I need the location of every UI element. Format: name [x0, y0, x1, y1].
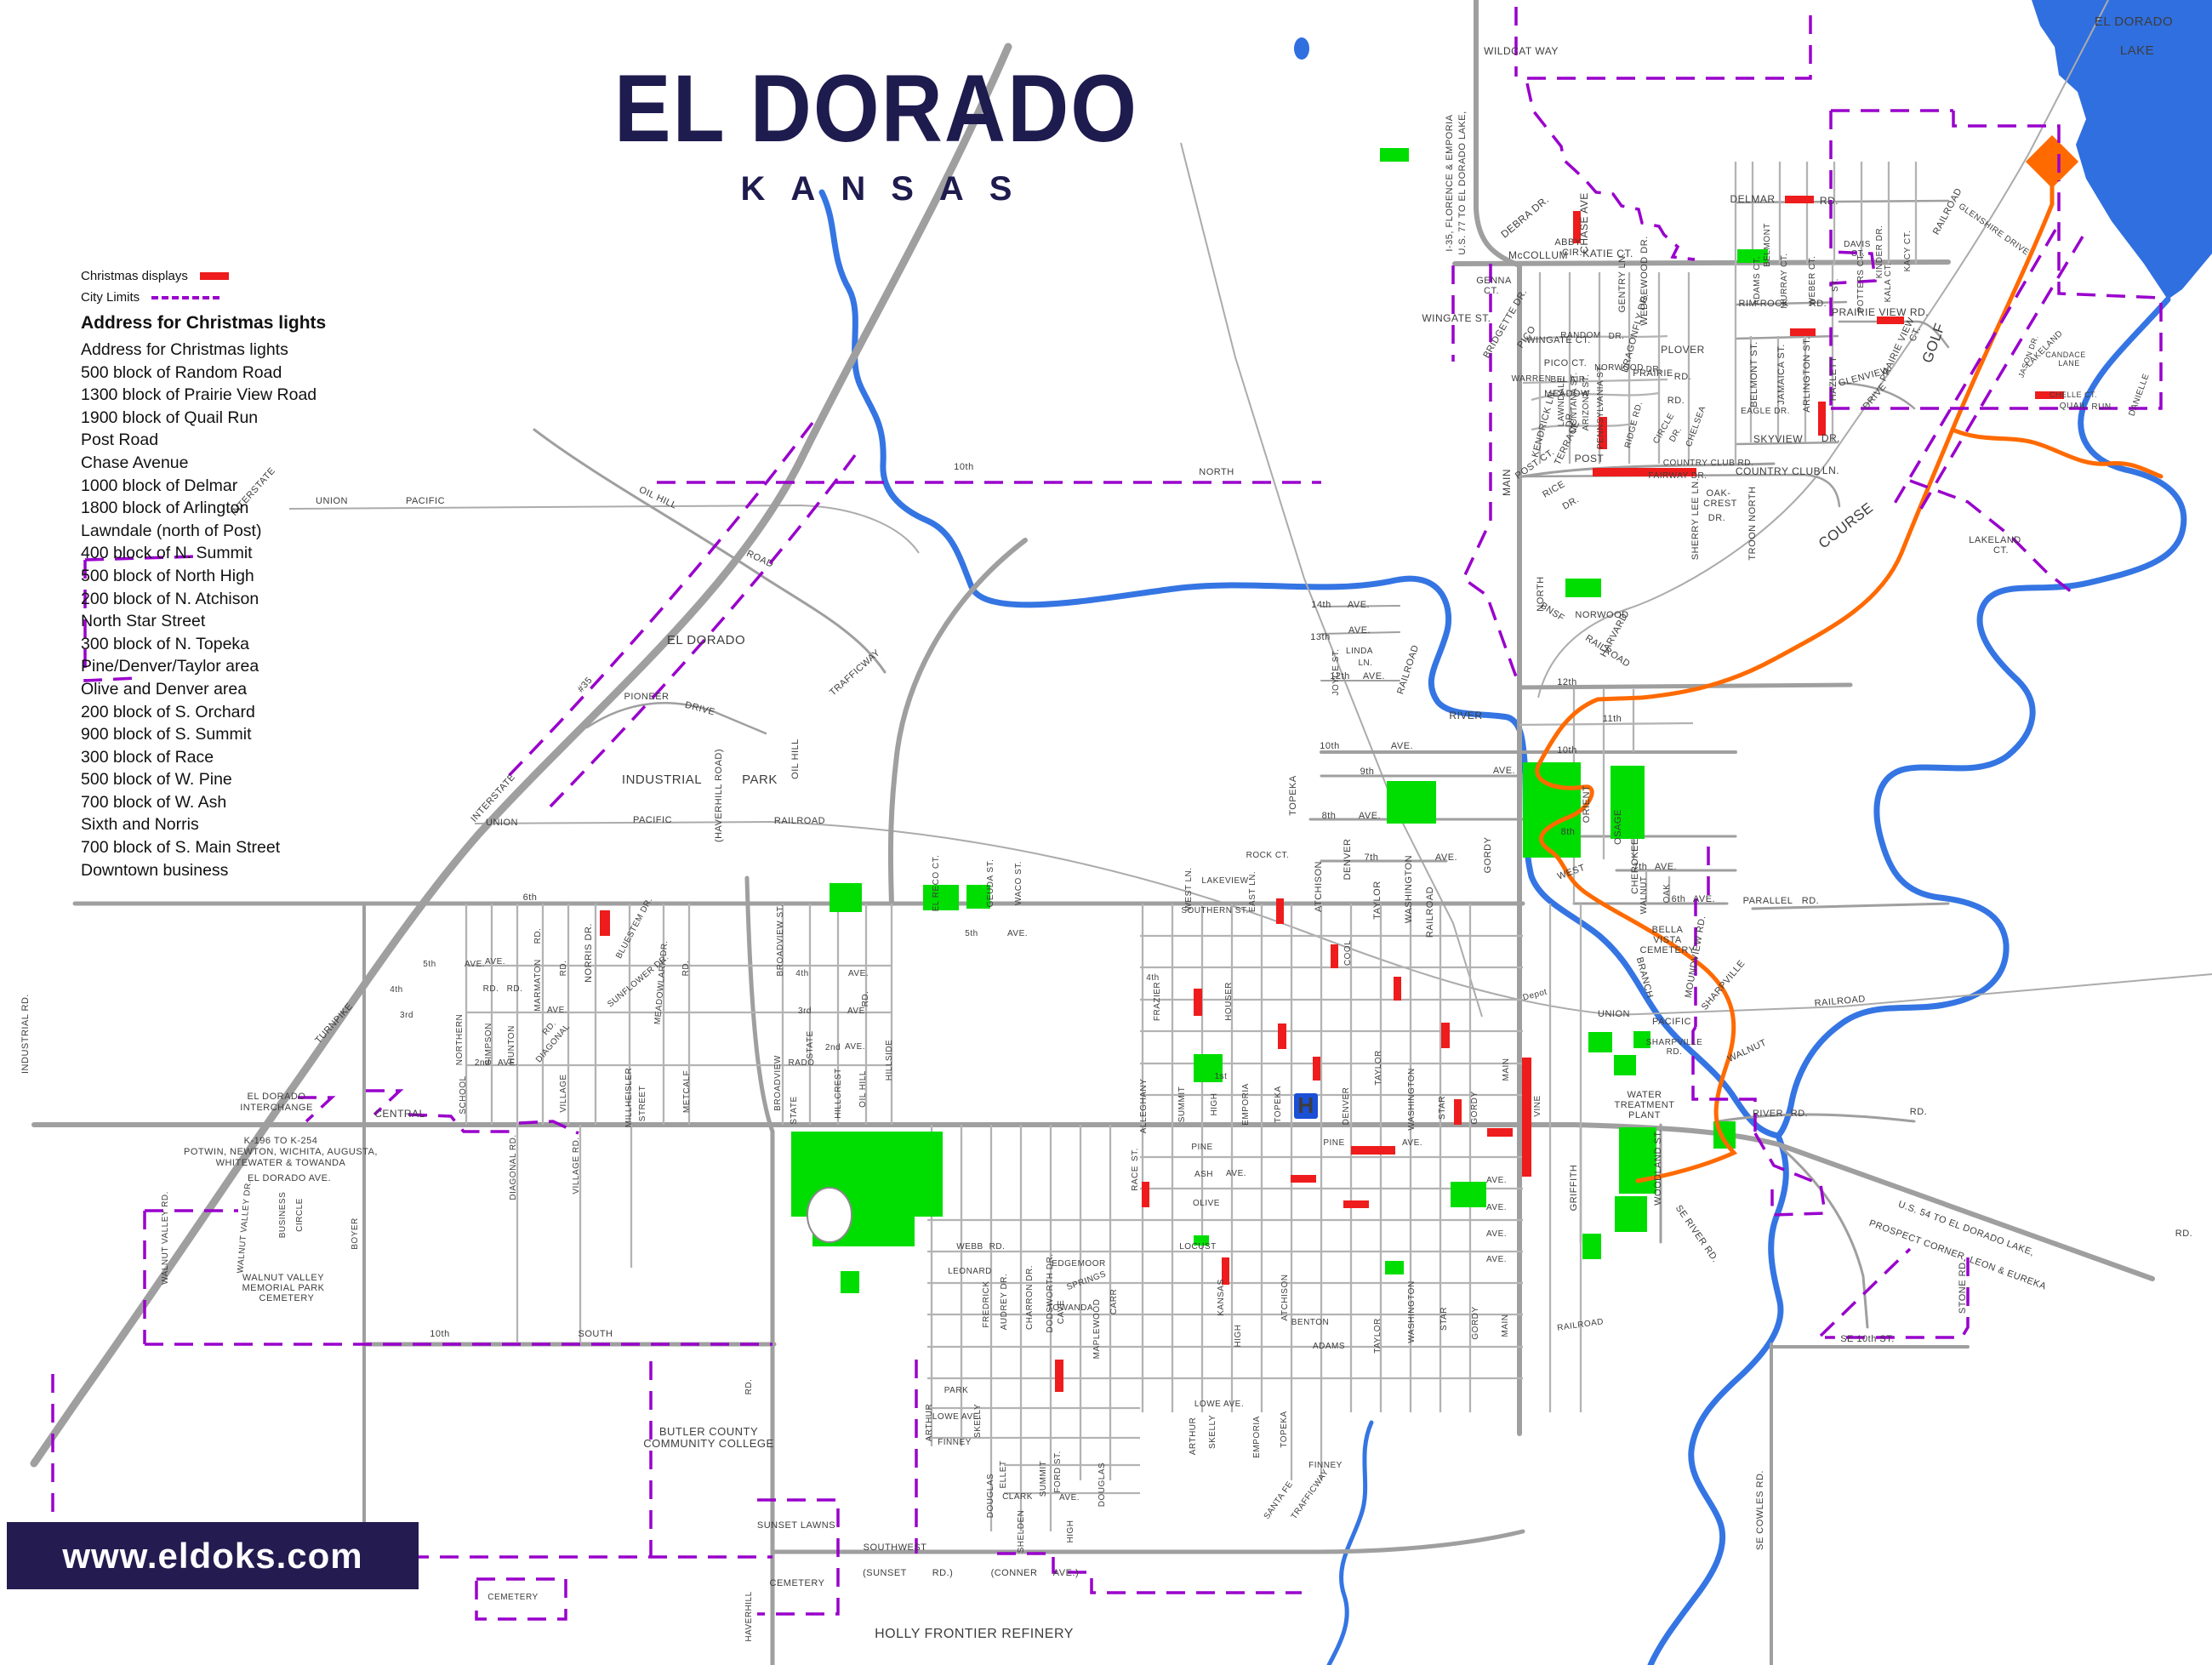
- map-label: TROON NORTH: [1747, 486, 1758, 560]
- christmas-display-marker: [1394, 977, 1401, 1001]
- park-area: [1614, 1055, 1636, 1075]
- map-label: LANE: [2058, 359, 2080, 368]
- park-area: [841, 1271, 859, 1293]
- map-label: U.S. 77 TO EL DORADO LAKE,: [1457, 111, 1468, 254]
- map-label: ST.: [1131, 1148, 1140, 1161]
- map-label: EL DORADO AVE.: [248, 1173, 331, 1183]
- map-label: TOWANDA: [1047, 1303, 1093, 1313]
- map-label: DRIVE: [684, 700, 716, 718]
- park-area: [1380, 148, 1409, 162]
- map-label: RANDOM: [1560, 331, 1600, 340]
- map-label: AVE.: [847, 1006, 868, 1016]
- map-label: BEL AIR: [1551, 375, 1586, 385]
- map-label: LN.: [1358, 659, 1372, 668]
- map-label: LEONARD: [948, 1267, 992, 1276]
- christmas-display-marker: [1313, 1057, 1320, 1081]
- map-label: VISTA: [1653, 935, 1682, 945]
- city-map: H WILDCAT WAYI-35, FLORENCE & EMPORIAU.S…: [0, 0, 2212, 1665]
- map-label: LOCUST: [1179, 1242, 1217, 1252]
- map-label: AVE.: [1007, 929, 1028, 938]
- map-label: 1st: [1215, 1072, 1228, 1081]
- map-label: ORIENT: [1582, 785, 1592, 824]
- address-item: 400 block of N. Summit: [81, 542, 326, 565]
- map-label: 10th: [1557, 745, 1576, 756]
- el-dorado-christmas-map: { "title":{"line1":"EL DORADO","line2":"…: [0, 0, 2212, 1665]
- map-label: TRAFFICWAY: [1290, 1468, 1331, 1521]
- map-label: STAR: [1440, 1307, 1449, 1331]
- map-label: 8th: [1561, 827, 1576, 837]
- map-label: AVE.: [1348, 600, 1370, 610]
- map-label: ADAMS: [1313, 1342, 1345, 1351]
- map-label: BOYER: [351, 1217, 360, 1250]
- map-label: HIGH: [1234, 1325, 1243, 1348]
- pond: [1294, 37, 1309, 60]
- map-label: VINE: [1533, 1095, 1542, 1116]
- park-area: [1385, 1261, 1404, 1274]
- map-label: RD.: [1667, 1047, 1683, 1057]
- map-label: AVE.: [1359, 811, 1381, 821]
- map-label: BROADVIEW ST.: [776, 904, 785, 977]
- map-label: COOL: [1343, 940, 1353, 966]
- map-label: DIAGONAL RD.: [509, 1134, 518, 1200]
- map-label: INDUSTRIAL RD.: [20, 994, 31, 1074]
- map-label: AVE.: [1226, 1169, 1246, 1178]
- map-label: GLENSHIRE DRIVE: [1957, 202, 2031, 258]
- map-label: RIVER: [1753, 1109, 1783, 1119]
- map-label: VILLAGE: [559, 1074, 568, 1112]
- map-label: ALLEGHANY: [1139, 1079, 1149, 1134]
- christmas-display-marker: [1331, 944, 1338, 968]
- map-label: SOUTHERN ST.: [1181, 906, 1248, 915]
- map-label: STREET: [638, 1086, 647, 1121]
- christmas-display-marker: [600, 910, 610, 936]
- map-label: GRIFFITH: [1569, 1165, 1579, 1212]
- map-label: MONTANA ST.: [1570, 372, 1579, 432]
- map-label: MAIN: [1502, 1058, 1511, 1081]
- map-label: PRAIRIE VIEW RD.: [1832, 306, 1929, 318]
- map-label: 6th: [523, 892, 538, 903]
- map-label: SUNSET LAWNS: [757, 1520, 835, 1531]
- map-label: HILLSIDE: [885, 1040, 894, 1081]
- address-item: 500 block of North High: [81, 565, 326, 588]
- map-label: LN.: [1822, 465, 1839, 476]
- map-label: AUDREY DR.: [1000, 1274, 1009, 1331]
- map-label: ARLINGTON ST.: [1802, 336, 1812, 412]
- map-label: CIRCLE: [295, 1198, 305, 1232]
- map-label: BROADVIEW: [773, 1055, 783, 1111]
- map-label: AVE.: [1493, 766, 1515, 776]
- map-label: NORTH: [1536, 576, 1546, 611]
- map-label: WATER: [1628, 1090, 1662, 1100]
- map-label: AVE.: [1363, 671, 1385, 681]
- map-label: AVE.: [1486, 1229, 1507, 1239]
- map-label: STAR: [1438, 1096, 1447, 1120]
- map-label: RD.: [1820, 195, 1839, 207]
- map-label: GORDY: [1471, 1306, 1480, 1339]
- logo-title: EL DORADO: [544, 61, 1208, 157]
- map-label: LOWE AVE.: [1194, 1400, 1244, 1409]
- legend-label: Christmas displays: [81, 269, 188, 283]
- park-area: [923, 885, 959, 910]
- map-label: RD.: [989, 1242, 1006, 1252]
- address-item: 500 block of W. Pine: [81, 768, 326, 791]
- map-label: ASH: [1194, 1170, 1213, 1179]
- address-list-heading: Address for Christmas lights: [81, 313, 326, 334]
- map-label: 11th: [1603, 714, 1622, 724]
- legend: Christmas displays City Limits: [81, 265, 229, 308]
- park-area: [829, 883, 862, 912]
- hospital-marker: H: [1294, 1092, 1318, 1119]
- address-item: 300 block of N. Topeka: [81, 633, 326, 656]
- map-label: 13th: [1310, 632, 1330, 642]
- map-label: POST: [1575, 453, 1605, 465]
- map-label: AVE.: [1402, 1138, 1422, 1148]
- map-label: DANIELLE: [2128, 373, 2152, 418]
- map-label: (SUNSET: [863, 1568, 907, 1578]
- map-label: DR.: [1561, 494, 1582, 512]
- map-label: CHASE AVE: [1578, 192, 1590, 254]
- map-label: UNION: [1598, 1009, 1630, 1019]
- map-label: RICE: [1541, 479, 1566, 500]
- map-label: GENNA: [1476, 276, 1512, 286]
- map-label: ST.: [1831, 278, 1840, 292]
- map-label: HIGH: [1210, 1093, 1219, 1116]
- logo-subtitle: KANSAS: [544, 170, 1208, 208]
- map-label: POTWIN, NEWTON, WICHITA, AUGUSTA,: [184, 1147, 378, 1157]
- map-label: OAK-: [1707, 488, 1731, 499]
- map-label: AVE.: [547, 1006, 567, 1015]
- map-label: CEMETERY: [770, 1578, 825, 1588]
- map-label: RAILROAD: [774, 816, 825, 826]
- address-item: 200 block of N. Atchison: [81, 588, 326, 611]
- map-label: HOLLY FRONTIER REFINERY: [875, 1627, 1074, 1641]
- map-label: AVE.: [1655, 862, 1677, 872]
- map-label: HIGH: [1066, 1520, 1075, 1543]
- map-label: OIL HILL: [790, 738, 801, 779]
- map-label: CREST: [1703, 499, 1737, 509]
- map-label: CLARK: [1002, 1492, 1033, 1502]
- street-grid: [466, 162, 1916, 1531]
- map-label: PARK: [944, 1386, 969, 1395]
- address-item: Olive and Denver area: [81, 678, 326, 701]
- main-st-north: [1476, 0, 1519, 1125]
- map-label: MAPLEWOOD: [1092, 1299, 1102, 1360]
- address-item: 1000 block of Delmar: [81, 475, 326, 498]
- map-label: NORTH: [1199, 467, 1234, 477]
- map-label: SHARPVILLE: [1700, 958, 1747, 1012]
- map-label: 5th: [423, 960, 436, 969]
- map-label: PLANT: [1628, 1110, 1661, 1120]
- map-label: (CONNER: [991, 1568, 1038, 1578]
- map-label: LAKEVIEW: [1201, 876, 1248, 886]
- map-label: RD.: [1802, 896, 1819, 906]
- map-label: EMPORIA: [1252, 1416, 1262, 1458]
- map-label: TOPEKA: [1280, 1411, 1289, 1447]
- map-label: AVE.: [465, 960, 485, 969]
- park-area: [1619, 1127, 1656, 1194]
- address-item: Pine/Denver/Taylor area: [81, 655, 326, 678]
- map-label: TAYLOR: [1372, 881, 1382, 919]
- map-label: RAILROAD: [1931, 186, 1964, 237]
- map-label: BUSINESS: [278, 1192, 288, 1239]
- map-label: BELLA: [1652, 925, 1684, 935]
- map-label: 9th: [1360, 767, 1375, 777]
- park-area: [1565, 579, 1601, 597]
- map-label: WINGATE ST.: [1422, 312, 1491, 324]
- park-area: [1387, 781, 1436, 824]
- map-label: RIVER: [1449, 710, 1482, 721]
- map-label: BELMONT ST.: [1749, 341, 1759, 407]
- map-label: RD.: [861, 991, 870, 1007]
- map-label: GORDY: [1470, 1091, 1479, 1124]
- map-label: DAVIS: [1844, 240, 1871, 249]
- map-label: MILLHEISLER: [624, 1068, 634, 1128]
- address-item: 900 block of S. Summit: [81, 723, 326, 746]
- map-label: K-196 TO K-254: [244, 1136, 318, 1146]
- pipeline: [1537, 135, 2161, 1181]
- address-item: Chase Avenue: [81, 452, 326, 475]
- map-label: SKELLY: [973, 1404, 983, 1438]
- map-label: EL DORADO: [2095, 14, 2173, 29]
- map-label: JAMAICA ST.: [1776, 344, 1787, 405]
- park-area: [1582, 1234, 1601, 1259]
- map-label: 14th: [1311, 600, 1331, 610]
- map-label: SHERRY LEE LN.: [1690, 478, 1701, 560]
- map-label: AVE.: [1486, 1203, 1507, 1212]
- legend-row-limits: City Limits: [81, 287, 229, 308]
- address-item: 1800 block of Arlington: [81, 497, 326, 520]
- christmas-display-marker: [1454, 1099, 1462, 1125]
- map-label: #35: [576, 676, 595, 695]
- map-label: WALNUT VALLEY: [242, 1273, 324, 1283]
- map-label: 10th: [1320, 741, 1339, 751]
- map-label: EL RECO CT.: [932, 855, 941, 912]
- map-label: OLIVE: [1193, 1199, 1220, 1208]
- map-label: DOUGLAS: [1097, 1463, 1107, 1507]
- map-label: LAKE: [2120, 43, 2154, 58]
- map-label: EMPORIA: [1241, 1083, 1251, 1126]
- map-label: EDGEMOOR: [1052, 1259, 1105, 1269]
- map-label: ATCHISON: [1314, 861, 1324, 912]
- christmas-display-marker: [1785, 196, 1814, 203]
- address-item: Downtown business: [81, 859, 326, 882]
- map-label: GENTRY LN.: [1617, 253, 1628, 313]
- map-label: 6th: [1672, 894, 1686, 904]
- address-item: 700 block of W. Ash: [81, 791, 326, 814]
- map-label: WEST LN.: [1184, 867, 1194, 910]
- map-label: BUTLER COUNTY: [659, 1425, 758, 1438]
- christmas-display-marker: [1278, 1024, 1286, 1049]
- map-label: FINNEY: [1308, 1461, 1343, 1470]
- map-label: HAVERHILL: [744, 1591, 754, 1641]
- map-label: DR.: [1646, 365, 1662, 374]
- map-label: WASHINGTON: [1407, 1068, 1417, 1130]
- map-label: BELMONT: [1763, 223, 1772, 267]
- map-label: 4th: [390, 985, 402, 995]
- haverhill-rd: [747, 878, 772, 1665]
- map-label: PARALLEL: [1743, 896, 1793, 906]
- address-item: Lawndale (north of Post): [81, 520, 326, 543]
- map-label: SOUTH: [579, 1329, 613, 1339]
- map-label: HAZLETT: [1828, 356, 1839, 401]
- map-label: RD.: [507, 984, 523, 994]
- red-bar-swatch: [200, 272, 229, 280]
- map-label: RD.: [681, 961, 691, 977]
- map-label: Depot: [1522, 987, 1548, 1002]
- map-label: SKYVIEW: [1753, 433, 1803, 445]
- map-label: STONE RD.: [1958, 1259, 1968, 1314]
- christmas-display-marker: [1055, 1360, 1063, 1392]
- map-labels: WILDCAT WAYI-35, FLORENCE & EMPORIAU.S. …: [20, 14, 2192, 1642]
- map-label: PACIFIC: [406, 496, 445, 506]
- map-label: AVE.: [1059, 1493, 1080, 1502]
- map-label: OSAGE: [1613, 809, 1623, 845]
- map-label: DEBRA DR.: [1498, 193, 1551, 240]
- map-label: FRAZIER: [1153, 982, 1162, 1021]
- map-label: DR.: [1708, 513, 1725, 523]
- map-label: COUNTRY CLUB RD.: [1663, 459, 1754, 468]
- map-label: AVE.: [498, 1058, 518, 1068]
- map-label: 3rd: [798, 1006, 812, 1016]
- stadium-oval: [807, 1188, 852, 1242]
- christmas-display-marker: [1487, 1128, 1513, 1137]
- map-label: FORD ST.: [1053, 1451, 1063, 1493]
- map-label: 7th: [1365, 852, 1379, 863]
- map-label: DODSWORTH DR.: [1046, 1254, 1055, 1333]
- map-label: TRAFFICWAY: [828, 647, 882, 698]
- map-label: AVE.: [845, 1042, 865, 1052]
- map-label: DELMAR: [1730, 193, 1775, 205]
- map-label: FREDRICK: [982, 1280, 991, 1327]
- map-label: ARTHUR: [1189, 1417, 1198, 1455]
- map-label: MAIN: [1501, 469, 1513, 496]
- map-label: AVE.: [1486, 1255, 1507, 1264]
- map-label: SHARPVILLE: [1646, 1038, 1703, 1047]
- map-label: METCALF: [682, 1070, 692, 1113]
- map-label: DENVER: [1343, 839, 1353, 881]
- map-label: RACE: [1131, 1166, 1140, 1191]
- map-label: 10th: [954, 462, 973, 472]
- map-label: TAYLOR: [1374, 1050, 1383, 1086]
- map-label: WARREN: [1511, 374, 1551, 384]
- map-label: RADO: [789, 1058, 815, 1068]
- map-label: WALNUT: [1639, 876, 1649, 915]
- map-label: TOPEKA: [1274, 1086, 1283, 1122]
- map-label: INTERCHANGE: [240, 1103, 313, 1113]
- map-label: RAILROAD: [1425, 887, 1435, 938]
- map-label: CEMETERY: [487, 1593, 538, 1602]
- map-label: AVE.: [1348, 625, 1371, 636]
- map-label: RD.: [1674, 372, 1691, 382]
- map-label: DENVER: [1342, 1087, 1351, 1126]
- park-area: [1588, 1032, 1612, 1052]
- map-label: GORDY: [1483, 836, 1493, 873]
- address-item: Post Road: [81, 429, 326, 452]
- map-label: SOUTHWEST: [864, 1542, 927, 1553]
- address-item: 300 block of Race: [81, 746, 326, 769]
- map-label: WOODLAND ST.: [1653, 1129, 1663, 1206]
- map-label: WILDCAT WAY: [1484, 45, 1559, 57]
- park-area: [1615, 1196, 1647, 1232]
- map-label: SUMMIT: [1177, 1086, 1187, 1122]
- map-label: 2nd: [825, 1043, 841, 1052]
- christmas-display-marker: [1522, 1058, 1531, 1177]
- map-label: PIONEER: [624, 692, 669, 702]
- map-label: COURSE: [1816, 499, 1876, 552]
- map-label: PLOVER: [1661, 344, 1705, 356]
- map-label: HOUSER: [1224, 982, 1234, 1021]
- map-label: PINE: [1191, 1143, 1212, 1152]
- map-label: KALA CT.: [1884, 263, 1893, 303]
- map-label: RAILROAD: [1814, 994, 1866, 1008]
- christmas-display-marker: [1194, 989, 1202, 1016]
- map-label: PENNSYLVANIA ST.: [1596, 364, 1605, 449]
- map-label: ARIZONA ST.: [1582, 374, 1591, 431]
- map-label: WEBER CT.: [1808, 256, 1817, 306]
- map-label: EL DORADO: [667, 633, 745, 647]
- map-label: WALNUT VALLEY RD.: [161, 1191, 170, 1285]
- map-label: 2nd: [475, 1058, 490, 1068]
- map-label: PINE: [1323, 1138, 1344, 1148]
- address-item: 1900 block of Quail Run: [81, 407, 326, 430]
- map-label: SUMMIT: [1039, 1461, 1048, 1497]
- christmas-display-marker: [1142, 1182, 1149, 1207]
- map-label: LINDA: [1346, 647, 1373, 656]
- map-label: UNION: [486, 818, 518, 828]
- map-label: COMMUNITY COLLEGE: [643, 1437, 773, 1450]
- map-label: AVE.: [848, 969, 869, 978]
- map-label: AVE.: [1391, 741, 1413, 751]
- map-label: DR.: [1668, 425, 1684, 444]
- map-label: DR.: [1609, 332, 1625, 341]
- map-label: ADAMS CT.: [1753, 256, 1762, 305]
- map-label: RD.: [533, 928, 543, 944]
- map-label: EAST LN.: [1248, 871, 1257, 912]
- map-label: AVE.: [1435, 852, 1457, 863]
- map-label: 12th: [1330, 671, 1349, 681]
- map-label: WASHINGTON: [1407, 1280, 1417, 1343]
- map-label: QUAIL: [2060, 402, 2088, 411]
- map-label: PARK: [742, 773, 778, 787]
- map-label: NORRIS DR.: [584, 923, 594, 983]
- legend-label: City Limits: [81, 290, 140, 305]
- christmas-display-marker: [1291, 1175, 1316, 1183]
- map-label: GEUDA ST.: [986, 859, 995, 908]
- map-label: LAWNDALE: [1557, 377, 1566, 427]
- map-label: RAILROAD: [1395, 644, 1421, 696]
- park-area: [1451, 1182, 1486, 1207]
- map-label: CHARRON DR.: [1025, 1265, 1035, 1330]
- map-label: MARMATON: [533, 959, 543, 1011]
- map-label: EL DORADO: [248, 1092, 306, 1102]
- address-item: Sixth and Norris: [81, 813, 326, 836]
- map-label: WALNUT VALLEY DR.: [236, 1180, 254, 1274]
- map-label: ATCHISON: [1280, 1274, 1290, 1321]
- address-item: 700 block of S. Main Street: [81, 836, 326, 859]
- map-label: RD.: [1668, 396, 1685, 406]
- map-label: 12th: [1557, 677, 1576, 687]
- map-label: AVE.): [1053, 1568, 1079, 1578]
- map-label: SHELDEN: [1017, 1510, 1026, 1554]
- map-label: VILLAGE RD.: [572, 1137, 581, 1194]
- map-label: AVE.: [1486, 1176, 1507, 1185]
- park-area: [1523, 762, 1581, 858]
- legend-row-displays: Christmas displays: [81, 265, 229, 287]
- map-label: TREATMENT: [1615, 1100, 1675, 1110]
- map-label: RD.: [1791, 1109, 1808, 1119]
- trafficway: [891, 540, 1025, 904]
- map-label: CHELLE CT.: [2050, 391, 2097, 399]
